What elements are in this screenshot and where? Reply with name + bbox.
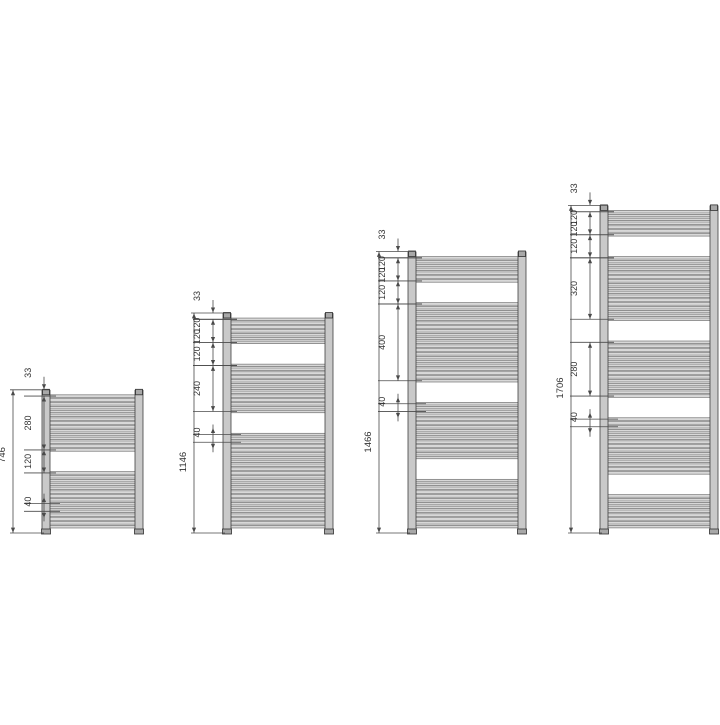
dim-label: 120 [377,285,387,300]
collector-tube-right [135,390,143,533]
tube-foot [135,529,144,534]
total-height-label-1706: 1706 [555,377,566,398]
dim-label: 120 [23,454,33,469]
tube-foot [518,529,527,534]
dim-label: 280 [23,416,33,431]
radiator-746: 7463328012040 [0,368,144,534]
radiator-1706: 17063312012012032028040 [555,183,719,534]
dim-label-40: 40 [569,412,579,422]
tube-cap [519,251,526,257]
dim-label-33: 33 [569,183,579,193]
total-height-label-1466: 1466 [363,431,374,452]
dim-label-40: 40 [192,428,202,438]
radiator-1146: 11463312012012024040 [178,291,334,534]
rung-tubes-1706 [607,210,711,527]
tube-cap [136,389,143,395]
dim-label-40: 40 [377,397,387,407]
dim-label-40: 40 [23,497,33,507]
dim-label: 120 [569,239,579,254]
total-height-label-746: 746 [0,447,8,463]
collector-tube-left [600,206,608,533]
collector-tube-right [325,314,333,534]
radiator-1466: 14663312012012040040 [363,229,527,534]
rung-tubes-746 [49,395,136,528]
dim-label-33: 33 [23,368,33,378]
dim-label: 120 [192,346,202,361]
diagram-svg: 7463328012040114633120120120240401466331… [0,0,720,720]
collector-tube-left [223,314,231,534]
dim-label: 120 [192,329,202,344]
dim-label-33: 33 [192,291,202,301]
dim-label: 400 [377,335,387,350]
dim-label: 240 [192,381,202,396]
tube-cap [326,313,333,319]
radiator-dimension-diagram: 7463328012040114633120120120240401466331… [0,0,720,720]
tube-foot [325,529,334,534]
dim-label: 120 [377,268,387,283]
collector-tube-right [518,252,526,533]
tube-cap [711,205,718,211]
dim-label: 320 [569,281,579,296]
dim-label-33: 33 [377,229,387,239]
collector-tube-right [710,206,718,533]
total-height-label-1146: 1146 [178,452,189,472]
dim-label: 280 [569,362,579,377]
rung-tubes-1466 [415,257,519,528]
collector-tube-left [408,252,416,533]
dim-label: 120 [569,222,579,237]
rung-tubes-1146 [230,318,326,528]
tube-foot [710,529,719,534]
